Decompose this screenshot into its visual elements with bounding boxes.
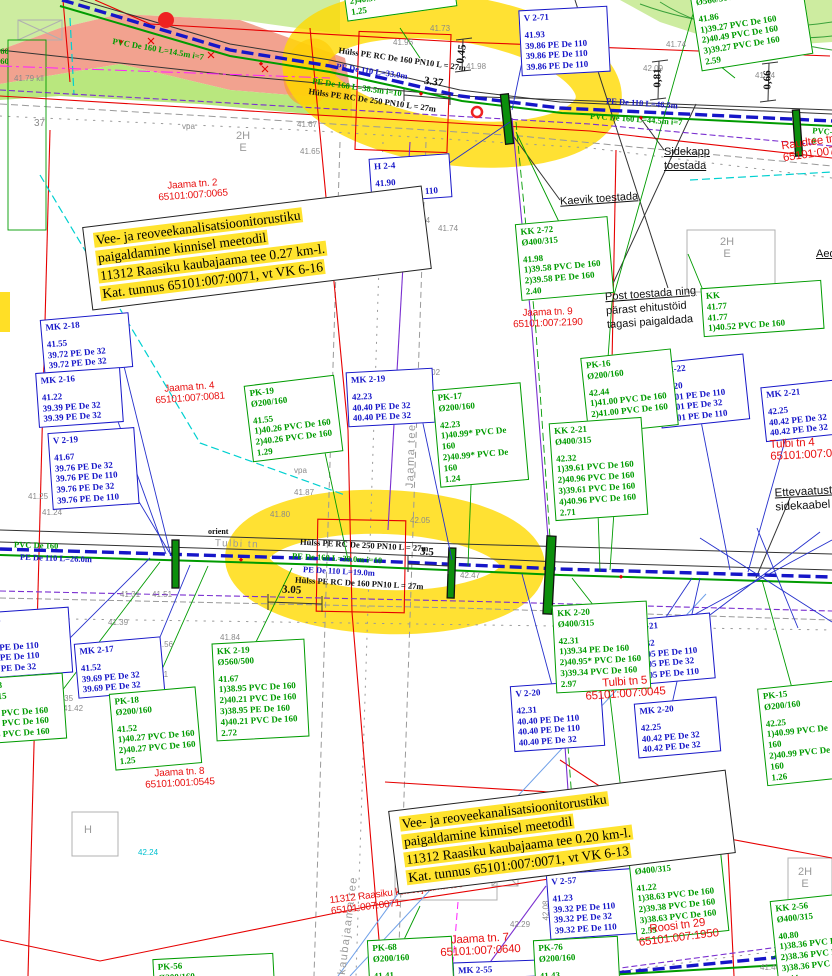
node-values: 42.25 40.42 PE De 32 40.42 PE De 32: [640, 717, 717, 756]
spot-elevation: 41.96: [393, 38, 413, 47]
dimension-3-37: 3.37: [423, 75, 444, 90]
spot-elevation: 42.05: [410, 516, 430, 525]
spot-elevation: 42.47: [460, 571, 480, 580]
dimension-3-05: 3.05: [282, 584, 302, 597]
node-values: 1)38.76 PVC De 160 2)38.71 PVC De 160 3)…: [0, 703, 63, 742]
spot-elevation: 41.98: [466, 62, 486, 71]
parcel-number: 37: [34, 118, 45, 129]
cadastral-jaama-7: Jaama tn. 7 65101:007:0640: [439, 931, 521, 960]
node-values: 42.23 1)40.99* PVC De 160 2)40.99* PVC D…: [440, 413, 525, 485]
node-id: PK-76 Ø200/160: [538, 939, 615, 965]
node-values: 41.93 39.86 PE De 110 39.86 PE De 110 39…: [524, 26, 606, 73]
node-values: 41.41: [373, 967, 449, 976]
street-tulbi-tn: Tulbi tn: [215, 538, 260, 551]
node-values: 42.25 1)40.99 PVC De 160 2)40.99 PVC De …: [765, 711, 832, 783]
node-box-mk2-19: MK 2-1942.23 40.40 PE De 32 40.40 PE De …: [346, 368, 436, 428]
spot-elevation: 41.67: [297, 120, 317, 129]
node-id: PK-56 Ø200/160: [158, 956, 271, 976]
annotation-text: Ettevaatust: [774, 485, 832, 500]
spot-elevation: 41.74: [438, 224, 458, 233]
node-box-v2-19: V 2-1941.67 39.76 PE De 32 39.76 PE De 1…: [47, 427, 139, 510]
building-label: 2H E: [720, 236, 734, 260]
node-values: 41.98 1)39.58 PVC De 160 2)39.58 PE De 1…: [522, 247, 609, 297]
node-values: 42.32 1)39.61 PVC De 160 2)40.96 PVC De …: [556, 448, 644, 518]
node-id: MK 2-19: [351, 371, 429, 386]
annotation-aed: Aed: [816, 248, 832, 262]
red-ring-marker: [472, 107, 482, 117]
node-id: MK 2-17: [79, 640, 158, 658]
node-id: MK 2-21: [766, 382, 832, 400]
cadastral-jaama-9: Jaama tn. 9 65101:007:2190: [513, 307, 583, 331]
node-box-v2-57: V 2-5741.23 39.32 PE De 110 39.32 PE De …: [546, 868, 637, 940]
building-label: 2H E: [798, 866, 812, 890]
node-box-pk-76: PK-76 Ø200/16041.43: [533, 936, 620, 976]
spot-elevation: 42.29: [510, 920, 530, 929]
node-id: PK-15 Ø200/160: [762, 683, 832, 712]
annotation-text: Sidekapp toestada: [664, 146, 710, 172]
spot-elevation: 41.79 kll: [14, 74, 44, 83]
spot-elevation: 41.87: [294, 488, 314, 497]
node-box-v2-71: V 2-7141.93 39.86 PE De 110 39.86 PE De …: [518, 6, 610, 77]
node-box-mk2-21: MK 2-2142.25 40.42 PE De 32 40.42 PE De …: [760, 379, 832, 442]
spot-elevation: 41.65: [300, 147, 320, 156]
node-values: 40.80 1)38.36 PVC De 160 2)38.36 PVC De …: [778, 922, 832, 976]
node-id: V 2-71: [523, 9, 603, 24]
node-box-kk2-21: KK 2-21 Ø400/31542.32 1)39.61 PVC De 160…: [549, 417, 649, 522]
spot-elevation: 41.51: [152, 590, 172, 599]
cadastral-jaama-8: Jaama tn. 8 65101:001:0545: [144, 766, 215, 791]
cadastral-tulbi-4: Tulbi tn 4 65101:007:060: [769, 435, 832, 464]
spot-elevation: 41.84: [220, 633, 240, 642]
node-box-kk2-72: KK 2-72 Ø400/31541.98 1)39.58 PVC De 160…: [515, 216, 614, 301]
spot-elevation: 41.25: [28, 492, 48, 501]
node-id: KK 2-19 Ø560/500: [217, 642, 302, 668]
spot-elevation: 41.80: [270, 510, 290, 519]
node-id: KK 2-72 Ø400/315: [520, 219, 606, 248]
dimension-0-66: 0,66: [762, 70, 774, 89]
node-id: V 2-18: [0, 610, 66, 627]
node-values: 41.67 39.76 PE De 32 39.76 PE De 110 39.…: [54, 447, 136, 506]
node-values: 41.55 1)40.26 PVC De 160 2)40.26 PVC De …: [252, 406, 339, 459]
node-box-kk2-19: KK 2-19 Ø560/50041.67 1)38.95 PVC De 160…: [211, 639, 309, 742]
spot-elevation: 41.73: [430, 24, 450, 33]
node-id: MK 2-16: [40, 370, 117, 386]
annotation-text: sidekaabel: [775, 499, 831, 514]
node-box-pk-18: PK-18 Ø200/16041.52 1)40.27 PVC De 160 2…: [109, 686, 202, 770]
dimension-3-5: 3.5: [420, 546, 434, 559]
spot-elevation: 42.24: [138, 848, 158, 857]
spot-elevation: 41.31: [120, 590, 140, 599]
node-values: 41.52 1)40.27 PVC De 160 2)40.27 PVC De …: [116, 717, 197, 767]
node-id: KK 2-21 Ø400/315: [554, 420, 639, 447]
node-id: PK-17 Ø200/160: [437, 386, 519, 414]
red-marker-dot: [158, 12, 174, 28]
label-orient: orient: [208, 527, 228, 536]
node-box-mk2-20: MK 2-2042.25 40.42 PE De 32 40.42 PE De …: [634, 696, 721, 758]
node-id: MK 2-18: [45, 316, 126, 334]
annotation-sidekapp: Sidekapp toestada: [664, 146, 710, 174]
node-values: 41.43: [539, 967, 615, 976]
annotation-text: Aed: [816, 248, 832, 260]
node-values: 42.25 40.42 PE De 32 40.42 PE De 32: [767, 399, 832, 439]
node-id: KK 2-18 Ø400/315: [0, 676, 60, 704]
spot-elevation: 41.74: [666, 40, 686, 49]
node-values: 41.22 39.39 PE De 32 39.39 PE De 32: [42, 387, 120, 425]
node-box-pk-19: PK-19 Ø200/16041.55 1)40.26 PVC De 160 2…: [244, 375, 344, 462]
node-id: PK-19 Ø200/160: [249, 378, 333, 409]
node-box-mk2-55: MK 2-55: [453, 959, 541, 976]
node-box-pk-15: PK-15 Ø200/16042.25 1)40.99 PVC De 160 2…: [757, 680, 832, 787]
node-values: 41.23 39.32 PE De 110 39.32 PE De 32 39.…: [552, 888, 633, 937]
node-values: 42.23 40.40 PE De 32 40.40 PE De 32: [352, 388, 432, 424]
pipe-label-160-leftedge: 160 160: [0, 46, 9, 66]
dimension-0-81: 0,81: [652, 68, 664, 87]
dimension-0-45: 0,45: [454, 44, 468, 65]
street-jaama-tee: Jaama tee: [404, 423, 418, 488]
node-values: 41.67 1)38.95 PVC De 160 2)40.21 PVC De …: [218, 669, 305, 738]
node-box-kk2-18: KK 2-18 Ø400/3151)38.76 PVC De 160 2)38.…: [0, 673, 67, 746]
map-code: vpa: [294, 466, 307, 475]
node-id: MK 2-20: [639, 700, 714, 717]
node-id: PK-16 Ø200/160: [586, 352, 670, 382]
casing-mid-crossing: [543, 536, 556, 614]
utility-plan-map: Vee- ja reoveekanalisatsioonitorustiku p…: [0, 0, 832, 976]
pipe-label-pvc160-midleft: PVC De 160: [14, 539, 59, 551]
building-label: 2H E: [236, 130, 250, 154]
node-box-v2-18: V 2-1841.08 39.11 PE De 110 39.11 PE De …: [0, 607, 73, 680]
node-box-mk2-18: MK 2-1841.55 39.72 PE De 32 39.72 PE De …: [40, 312, 133, 375]
node-values: 42.31 40.40 PE De 110 40.40 PE De 110 40…: [516, 700, 601, 749]
node-values: 41.55 39.72 PE De 32 39.72 PE De 32: [46, 332, 129, 371]
node-id: PK-18 Ø200/160: [114, 690, 194, 718]
node-values: 41.08 39.11 PE De 110 39.11 PE De 110 39…: [0, 627, 69, 676]
node-id: PK-68 Ø200/160: [372, 939, 449, 965]
annotation-post: Post toestada ningpärast ehitustöid taga…: [605, 285, 699, 333]
node-id: H 2-4: [374, 157, 447, 173]
spot-elevation: 41.39: [108, 618, 128, 627]
node-box-mk2-16: MK 2-1641.22 39.39 PE De 32 39.39 PE De …: [35, 367, 124, 428]
node-id: V 2-19: [53, 430, 132, 446]
node-values: 41.77 41.77 1)40.52 PVC De 160: [706, 294, 820, 334]
building-label: H: [84, 824, 92, 836]
node-id: MK 2-55: [458, 963, 536, 976]
map-code: vpa: [182, 122, 195, 131]
node-id: KK 2-20 Ø400/315: [557, 604, 644, 630]
spot-elevation: 41.42: [63, 704, 83, 713]
node-box-kk2-56: KK 2-56 Ø400/31540.80 1)38.36 PVC De 160…: [770, 891, 832, 976]
annotation-ettevaatust: Ettevaatustsidekaabel: [774, 484, 832, 516]
node-box-pk-17: PK-17 Ø200/16042.23 1)40.99* PVC De 160 …: [432, 382, 529, 488]
node-id: KK 2-56 Ø400/315: [775, 895, 832, 925]
node-box-kk-partial: KK41.77 41.77 1)40.52 PVC De 160: [700, 280, 824, 338]
annotation-text: pärast ehitustöid tagasi paigaldada: [606, 299, 694, 330]
